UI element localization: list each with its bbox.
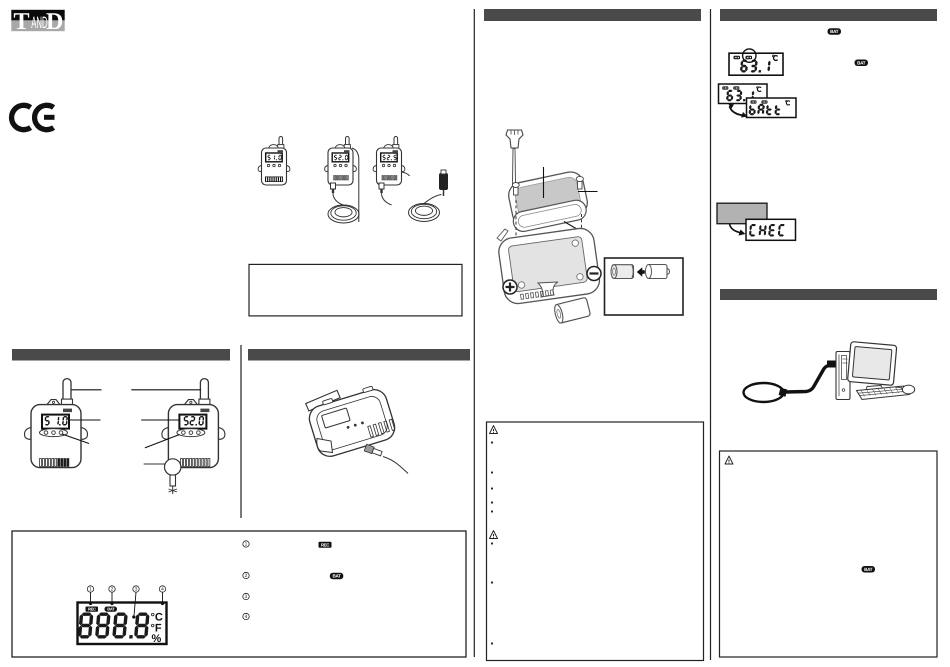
svg-text:REC: REC: [321, 542, 330, 547]
svg-text:BAT: BAT: [107, 607, 115, 612]
svg-text:4: 4: [245, 614, 248, 620]
svg-text:BAT: BAT: [830, 29, 839, 34]
svg-text:T: T: [14, 9, 30, 35]
svg-text:2: 2: [245, 573, 248, 579]
svg-text:2: 2: [111, 587, 114, 593]
svg-text:BAT: BAT: [332, 574, 341, 579]
svg-text:REC: REC: [88, 607, 96, 612]
svg-text:3: 3: [245, 594, 248, 600]
svg-text:BAT: BAT: [864, 567, 873, 572]
svg-text:3: 3: [135, 587, 138, 593]
svg-text:BAT: BAT: [857, 60, 866, 65]
svg-text:D: D: [46, 9, 63, 35]
svg-text:1: 1: [89, 587, 92, 593]
svg-text:1: 1: [245, 542, 248, 548]
svg-text:4: 4: [161, 587, 164, 593]
svg-text:%: %: [152, 633, 162, 645]
